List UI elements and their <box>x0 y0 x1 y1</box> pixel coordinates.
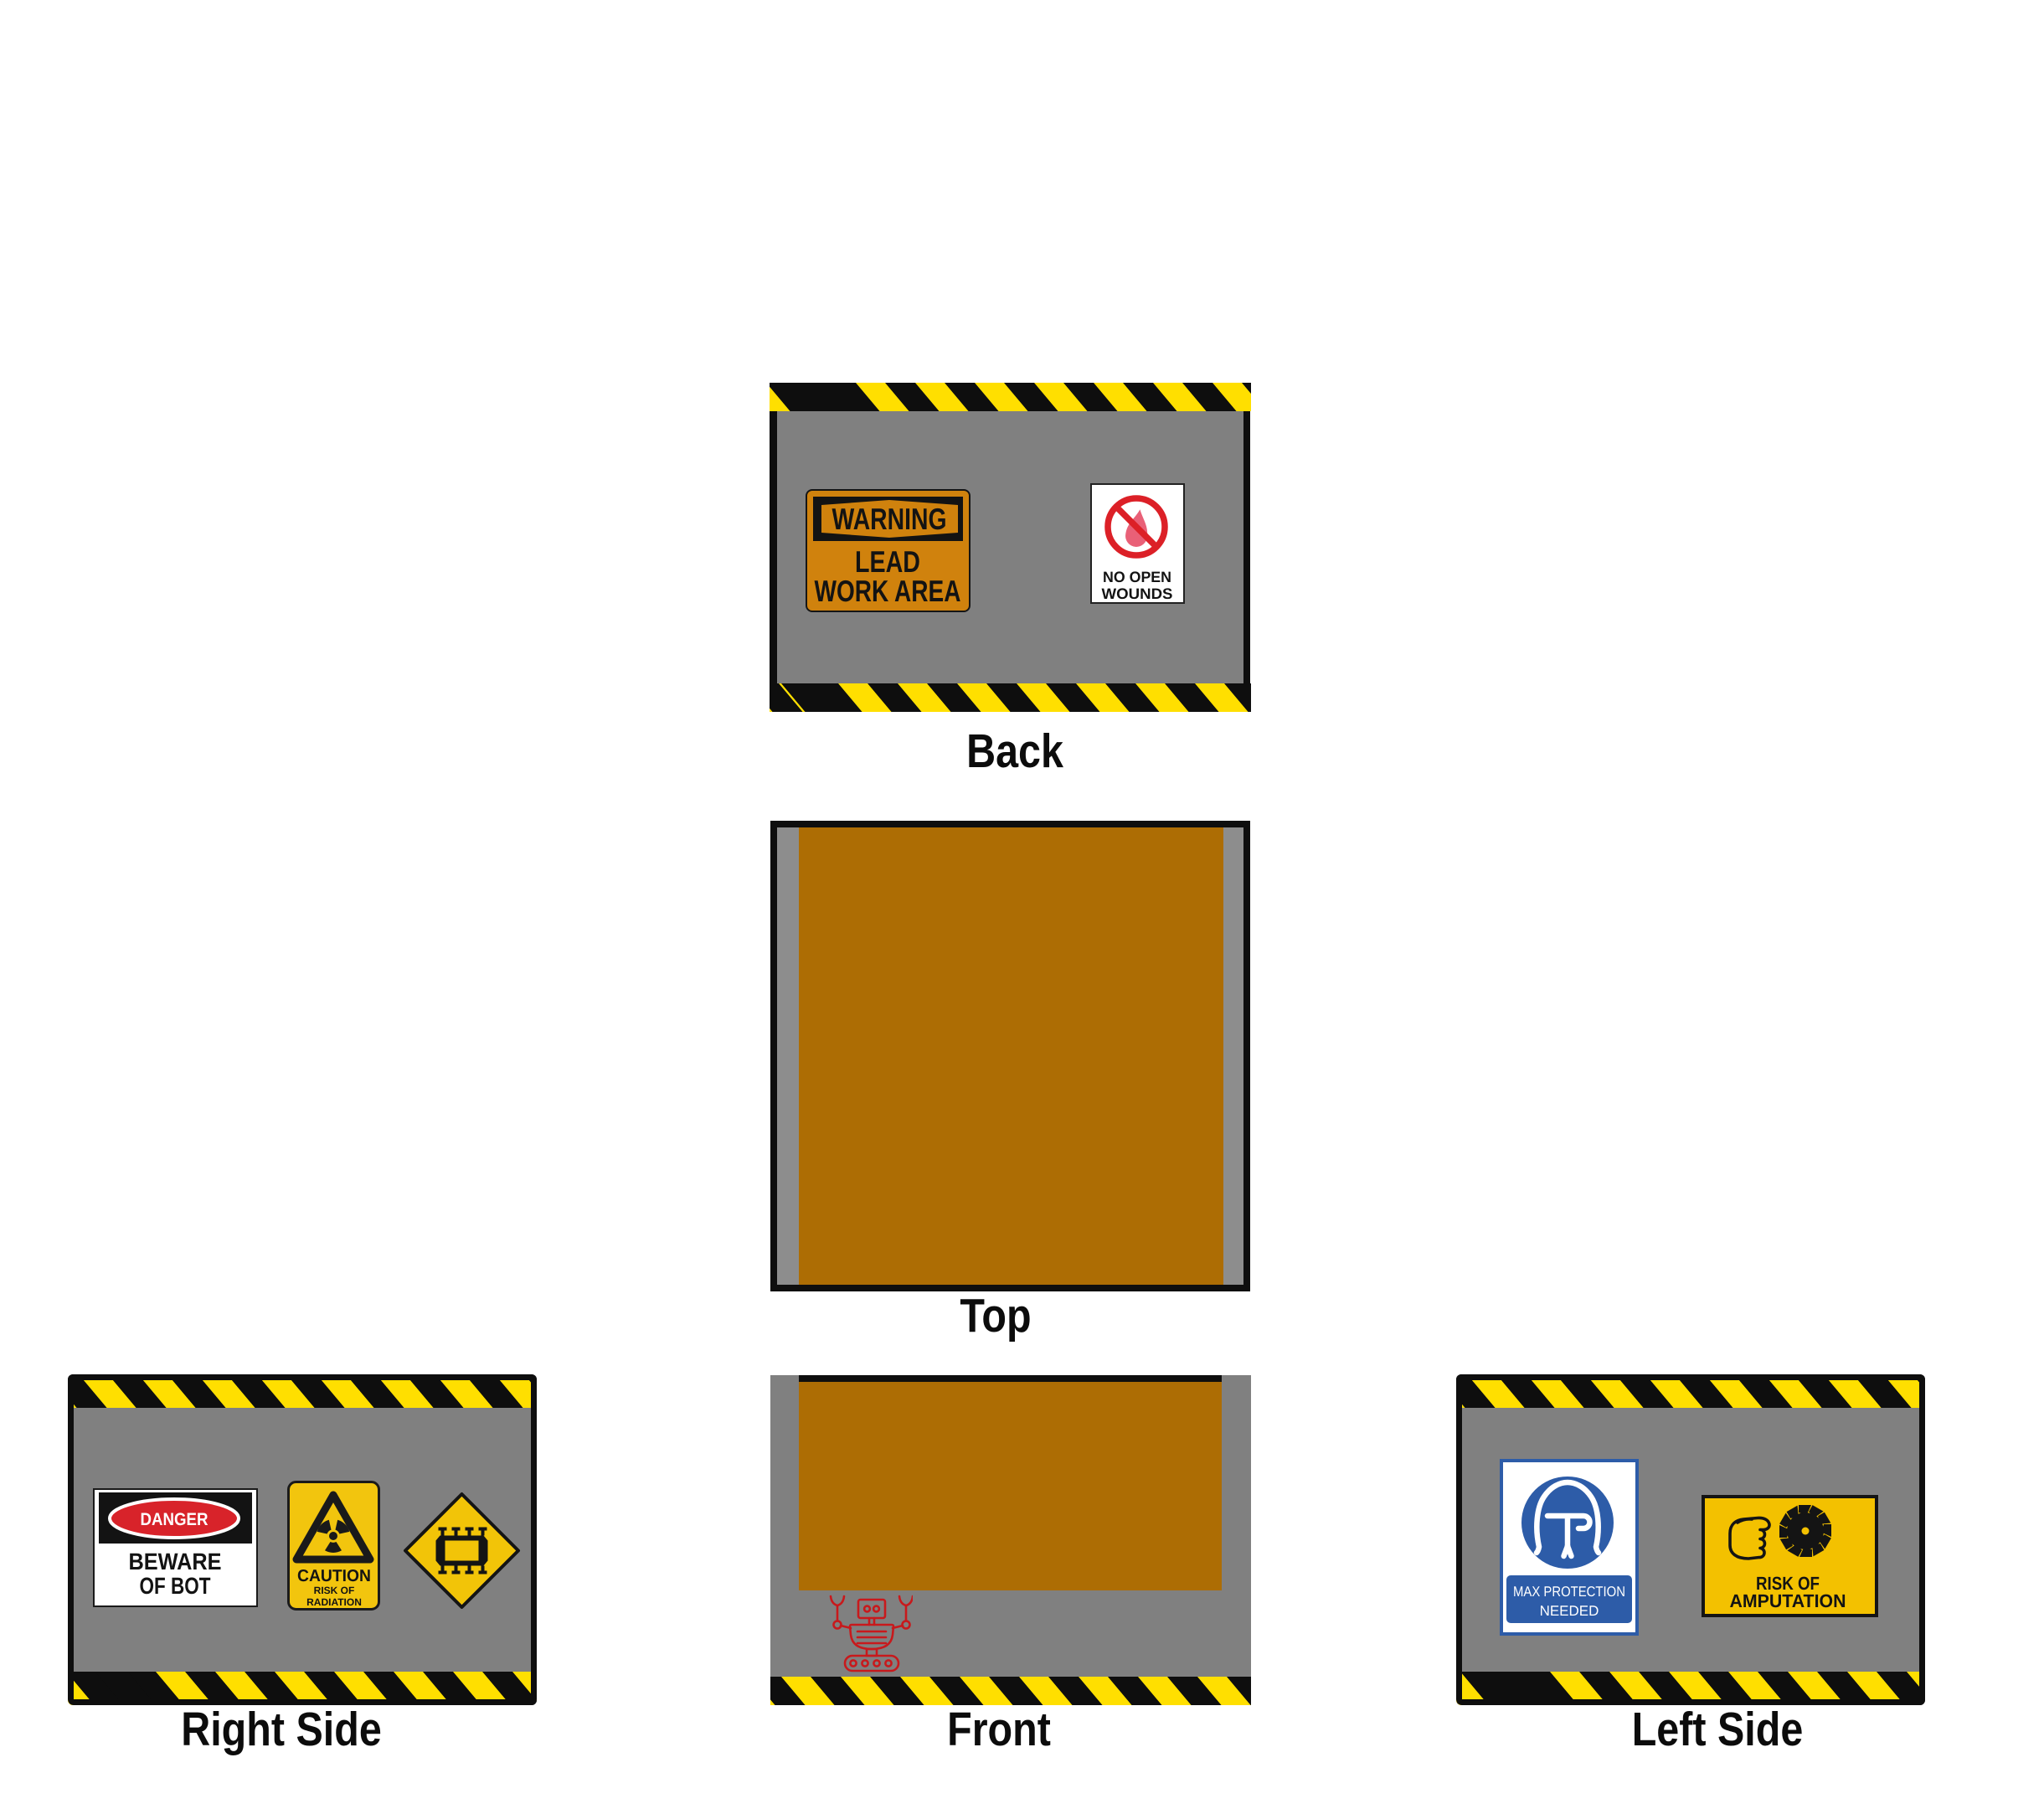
svg-text:BEWARE: BEWARE <box>129 1549 222 1574</box>
svg-text:OF BOT: OF BOT <box>140 1573 211 1599</box>
svg-text:NEEDED: NEEDED <box>1540 1603 1599 1619</box>
svg-text:CAUTION: CAUTION <box>297 1567 371 1585</box>
svg-text:WARNING: WARNING <box>832 502 947 536</box>
svg-text:WOUNDS: WOUNDS <box>1102 585 1173 602</box>
svg-text:MAX PROTECTION: MAX PROTECTION <box>1513 1584 1625 1600</box>
svg-text:WORK AREA: WORK AREA <box>815 574 961 608</box>
svg-text:AMPUTATION: AMPUTATION <box>1730 1590 1846 1611</box>
svg-text:RADIATION: RADIATION <box>306 1596 362 1608</box>
svg-text:RISK OF: RISK OF <box>314 1585 355 1596</box>
svg-text:DANGER: DANGER <box>141 1510 209 1529</box>
svg-text:NO OPEN: NO OPEN <box>1103 569 1171 585</box>
